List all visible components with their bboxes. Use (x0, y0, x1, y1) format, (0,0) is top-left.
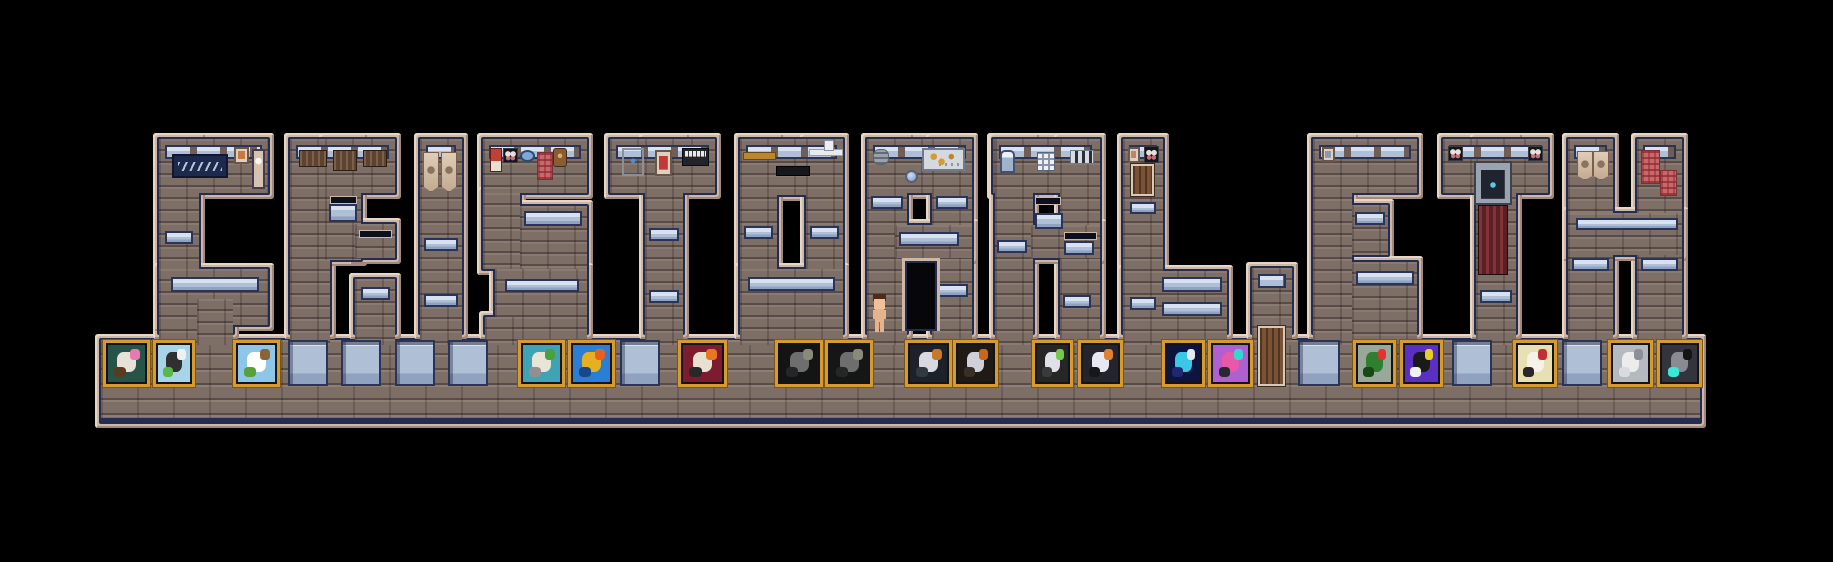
banner-decoration-I-0 (423, 152, 439, 192)
slots-decoration-A-2 (1070, 150, 1094, 164)
letter-R-wall-1 (290, 139, 330, 345)
clock-decoration-C-2 (252, 149, 265, 189)
painting-goat-skull[interactable] (1513, 340, 1557, 387)
art-motif (579, 367, 591, 377)
art-motif (979, 349, 988, 359)
doorway-decoration-B-3[interactable] (902, 258, 940, 331)
painting-art (910, 345, 947, 382)
painting-green-blob[interactable] (1353, 340, 1396, 387)
whiteitem-decoration-O-3 (824, 140, 834, 151)
butterfly-decoration-T2-0 (1448, 146, 1463, 161)
painting-crashed-ship[interactable] (1608, 340, 1653, 387)
pic-decoration-C-1 (234, 147, 249, 164)
vent-decoration-B-0 (873, 149, 889, 165)
painting-gray-punk[interactable] (1657, 340, 1702, 387)
painting-elephant-bust-2[interactable] (825, 340, 873, 387)
base-window-3 (448, 340, 488, 386)
billboard-decoration-B-2 (922, 148, 965, 171)
painting-orange-robot[interactable] (953, 340, 998, 387)
tapestry-decoration-H-3 (1660, 170, 1677, 196)
painting-art (1213, 345, 1248, 382)
art-motif (1425, 349, 1434, 359)
dslot-decoration-A-4 (1064, 232, 1097, 240)
letter-T2-window-0 (1480, 290, 1512, 303)
painting-sky-island[interactable] (233, 340, 280, 387)
letter-O-window-1 (810, 226, 839, 239)
letter-E-wall-1 (1313, 139, 1352, 345)
painting-art (108, 345, 145, 382)
art-motif (1042, 367, 1052, 377)
letter-C-wall-3 (197, 299, 233, 345)
letter-R-window-0 (329, 204, 357, 222)
cab-decoration-R-2 (363, 150, 387, 167)
scene-canvas[interactable] (0, 0, 1833, 562)
letter-S-wall-4 (485, 317, 522, 345)
art-motif (545, 349, 555, 359)
painting-art (958, 345, 993, 382)
letter-L-window-2 (1162, 277, 1222, 292)
letter-T-window-1 (649, 290, 679, 303)
base-window-7 (1562, 340, 1602, 386)
bluedoor-decoration-A-0[interactable] (1000, 150, 1015, 173)
painting-skull-flames[interactable] (678, 340, 727, 387)
art-motif (1683, 349, 1692, 359)
letter-I-window-0 (424, 238, 458, 251)
art-motif (1172, 367, 1183, 377)
art-motif (595, 349, 605, 359)
base-window-6 (1452, 340, 1492, 386)
art-motif (1410, 367, 1421, 377)
art-motif (803, 349, 813, 359)
character-sprite[interactable] (872, 294, 887, 332)
art-motif (964, 367, 975, 377)
painting-art (573, 345, 610, 382)
base-window-0 (288, 340, 328, 386)
art-motif (1089, 367, 1100, 377)
art-motif (177, 349, 185, 359)
letter-S-window-1 (505, 279, 579, 292)
lattice-decoration-A-1 (1037, 152, 1055, 171)
letter-B-window-1 (936, 196, 968, 209)
letter-O-window-0 (744, 226, 773, 239)
tapestry-decoration-S-3 (537, 152, 553, 180)
art-motif (1056, 349, 1064, 359)
art-motif (1619, 367, 1630, 377)
letter-E-window-1 (1356, 271, 1414, 285)
painting-art (1405, 345, 1438, 382)
painting-fox-in-suit[interactable] (1078, 340, 1123, 387)
letter-C-window-1 (165, 231, 193, 244)
painting-art (1358, 345, 1391, 382)
painting-blue-potion[interactable] (1162, 340, 1205, 387)
letter-R-window-1 (361, 287, 390, 300)
dslot-decoration-R-4 (359, 230, 392, 238)
letter-A-window-3 (997, 240, 1027, 253)
cab-decoration-R-0 (299, 150, 327, 167)
char-head (874, 299, 885, 309)
porthole-decoration-B-1 (905, 170, 918, 183)
art-motif (529, 367, 541, 377)
letter-B-window-3 (936, 284, 968, 297)
art-motif (1234, 349, 1243, 359)
art-motif (114, 367, 126, 377)
painting-art (1518, 345, 1552, 382)
letter-H-window-0 (1572, 258, 1609, 271)
base-door[interactable] (1258, 326, 1285, 386)
dslot-decoration-R-3 (330, 196, 357, 204)
machine-decoration-T2-2 (1474, 161, 1512, 205)
art-motif (1668, 367, 1679, 377)
butterfly-decoration-L-1 (1144, 146, 1159, 163)
char-arm-right (883, 310, 886, 319)
art-motif (244, 367, 256, 377)
satchel-decoration-S-4 (553, 148, 567, 167)
letter-I-window-1 (424, 294, 458, 307)
art-motif (689, 367, 701, 377)
flag-decoration-S-0 (490, 148, 502, 172)
letter-L-window-1 (1130, 297, 1156, 310)
painting-pirate-parrot[interactable] (905, 340, 952, 387)
char-arm-left (873, 310, 876, 319)
curtain-decoration-T2-3 (1478, 205, 1508, 275)
butterfly-decoration-S-1 (503, 148, 518, 163)
art-motif (163, 367, 173, 377)
painting-art (523, 345, 560, 382)
painting-art (158, 345, 190, 382)
pic-decoration-T-1 (655, 150, 672, 176)
painting-art (683, 345, 722, 382)
door-decoration-L-2[interactable] (1131, 164, 1154, 196)
letter-B-window-0 (871, 196, 903, 209)
letter-S-wall-1 (483, 193, 520, 269)
pic-decoration-E-0 (1322, 147, 1335, 162)
piano-decoration-T-2 (682, 148, 709, 166)
letter-S-window-0 (524, 211, 582, 226)
painting-elephant-bust-1[interactable] (775, 340, 823, 387)
painting-art (1083, 345, 1118, 382)
art-motif (1104, 349, 1113, 359)
painting-blade-figures[interactable] (1032, 340, 1073, 387)
art-motif (1634, 349, 1643, 359)
art-motif (1378, 349, 1387, 359)
art-motif (932, 349, 942, 359)
letter-O-window-2 (748, 277, 835, 291)
fridge-decoration-T-0 (622, 148, 644, 176)
letter-dot-window-strip-0 (1258, 274, 1286, 288)
art-motif (1219, 367, 1230, 377)
base-window-2 (395, 340, 435, 386)
dslot-decoration-A-3 (1035, 197, 1061, 205)
base-window-4 (620, 340, 660, 386)
banner-decoration-H-0 (1577, 151, 1593, 180)
art-motif (786, 367, 798, 377)
letter-B-window-2 (899, 232, 959, 246)
letter-A-window-0 (1035, 213, 1063, 229)
art-motif (1363, 367, 1374, 377)
painting-goggle-duck[interactable] (568, 340, 615, 387)
painting-pink-cat-robot[interactable] (1208, 340, 1253, 387)
letter-L-window-0 (1130, 202, 1156, 214)
letter-E-window-0 (1355, 212, 1385, 225)
plate-decoration-S-2 (520, 150, 535, 162)
letter-T-window-0 (649, 228, 679, 241)
painting-purple-rabbit[interactable] (1400, 340, 1443, 387)
cab-decoration-R-1 (333, 150, 357, 171)
art-motif (1523, 367, 1534, 377)
tableblack-decoration-O-1 (776, 166, 810, 176)
art-motif (853, 349, 863, 359)
painting-art (1662, 345, 1697, 382)
painting-art (238, 345, 275, 382)
letter-H-window-1 (1641, 258, 1678, 271)
rail-decoration-O-0 (743, 152, 776, 160)
base-window-5 (1298, 340, 1340, 386)
art-motif (260, 349, 270, 359)
art-motif (1538, 349, 1547, 359)
tapestry-decoration-H-2 (1641, 150, 1660, 184)
pic-decoration-L-0 (1128, 147, 1140, 163)
letter-L-window-3 (1162, 302, 1222, 316)
art-motif (916, 367, 928, 377)
painting-art (1613, 345, 1648, 382)
art-motif (836, 367, 848, 377)
char-leg-left (875, 322, 879, 332)
letter-C-window-0 (171, 277, 259, 292)
char-leg-right (880, 322, 884, 332)
butterfly-decoration-T2-1 (1528, 146, 1543, 161)
art-motif (130, 349, 140, 359)
banner-decoration-H-1 (1593, 151, 1609, 180)
painting-treasure-chest[interactable] (518, 340, 565, 387)
art-motif (706, 349, 716, 359)
base-window-1 (341, 340, 381, 386)
art-motif (1187, 349, 1196, 359)
painting-witch-portrait[interactable] (103, 340, 150, 387)
painting-art (780, 345, 818, 382)
painting-graffiti-art[interactable] (153, 340, 195, 387)
painting-art (1167, 345, 1200, 382)
painting-art (830, 345, 868, 382)
sign-decoration-C-0 (172, 154, 228, 178)
painting-art (1037, 345, 1068, 382)
letter-A-window-2 (1063, 295, 1091, 308)
banner-decoration-I-1 (441, 152, 457, 192)
letter-A-window-1 (1064, 241, 1094, 255)
letter-H-window-2 (1576, 218, 1678, 230)
